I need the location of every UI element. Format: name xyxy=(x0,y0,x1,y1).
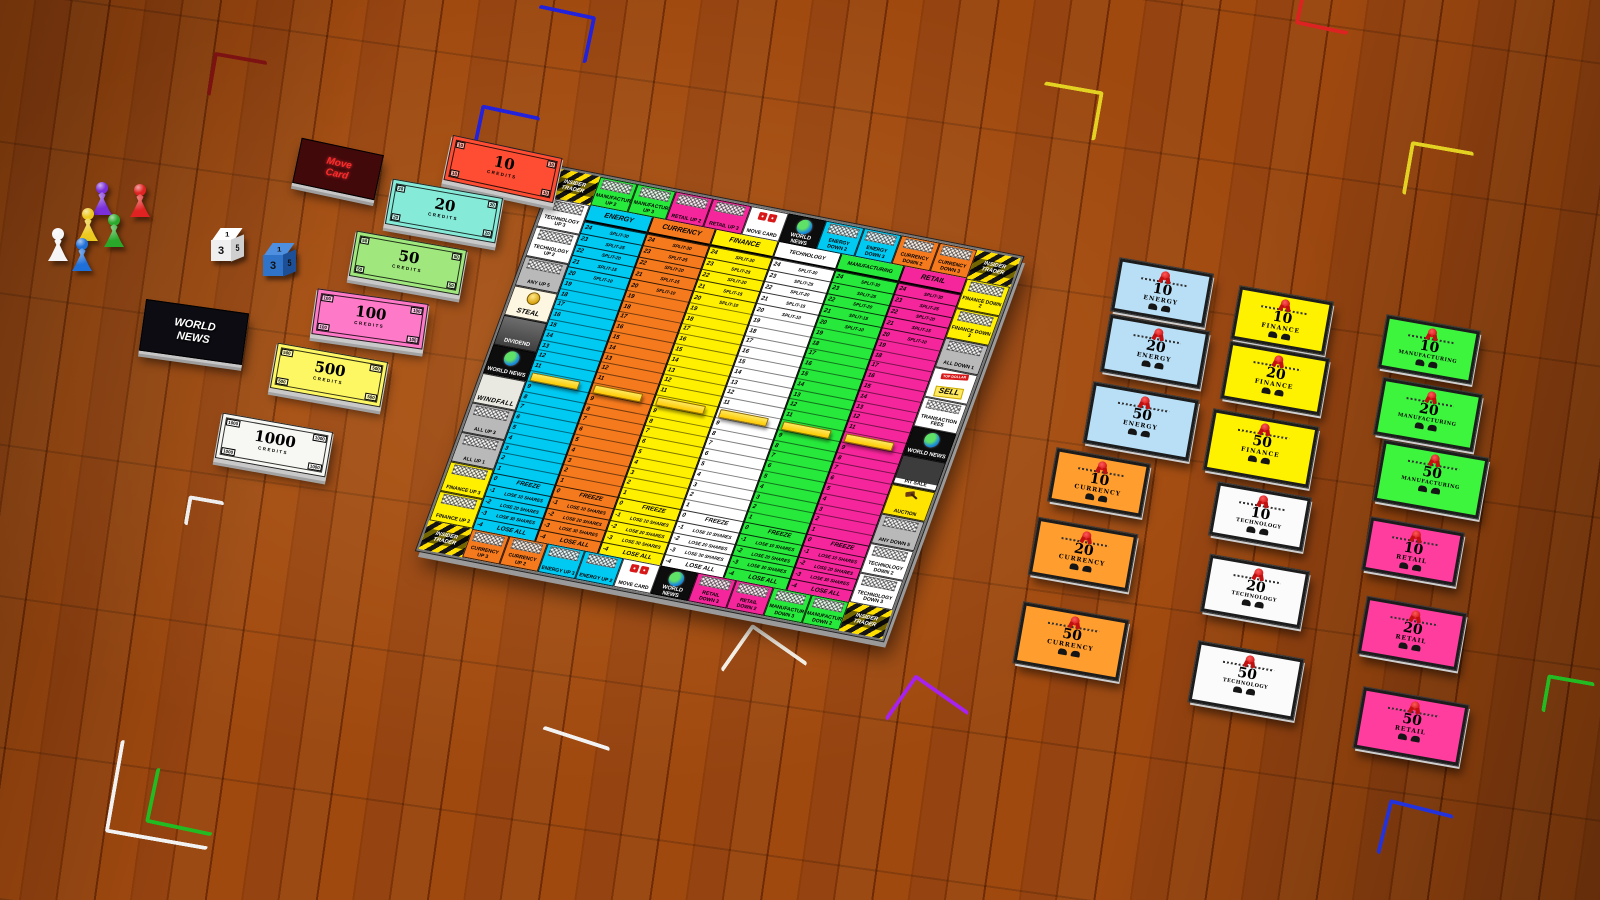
price-value: 11 xyxy=(657,387,672,395)
note-corner-value: 50 xyxy=(355,265,365,274)
price-value: 16 xyxy=(676,336,691,344)
price-value: 14 xyxy=(731,368,746,376)
bear-silhouette-icon xyxy=(1418,485,1428,492)
price-value: 18 xyxy=(558,291,573,299)
price-value: 15 xyxy=(547,321,562,329)
die-right-face: 5 xyxy=(231,234,244,261)
price-value: 6 xyxy=(513,414,528,422)
price-value: 18 xyxy=(809,340,824,348)
price-value: 1 xyxy=(809,526,824,534)
pawn-blue[interactable] xyxy=(72,238,92,271)
note-corner-value: 20 xyxy=(391,213,401,222)
bull-silhouette-icon xyxy=(1140,430,1150,437)
note-corner-value: 50 xyxy=(446,281,456,290)
share-certificate-manufacturing-20[interactable]: 20MANUFACTURING xyxy=(1374,378,1482,451)
red-ribbon-seal-icon xyxy=(1273,355,1283,365)
red-ribbon-seal-icon xyxy=(1160,271,1170,281)
money-note-100[interactable]: 100100100100100CREDITS xyxy=(311,288,428,349)
board-space-label: ENERGY UP 2 xyxy=(577,572,615,584)
share-certificate-currency-10[interactable]: 10CURRENCY xyxy=(1048,448,1150,517)
price-value: 8 xyxy=(709,430,724,438)
note-corner-value: 100 xyxy=(317,322,329,331)
price-value: 3 xyxy=(816,506,831,514)
world-news-deck-label: WORLD NEWS xyxy=(163,315,226,348)
red-ribbon-seal-icon xyxy=(1429,454,1439,464)
share-certificate-energy-20[interactable]: 20ENERGY xyxy=(1101,315,1209,388)
price-value: 6 xyxy=(764,463,779,471)
stock-chart-graphic xyxy=(586,553,619,568)
price-value: 5 xyxy=(635,449,650,457)
hand-zone-corner-marker xyxy=(1402,141,1474,205)
stock-chart-graphic xyxy=(812,597,845,612)
stock-chart-graphic xyxy=(601,179,634,194)
hand-zone-corner-marker xyxy=(720,624,808,709)
red-ribbon-seal-icon xyxy=(1244,655,1254,665)
price-value: 2 xyxy=(687,492,702,500)
price-value: 12 xyxy=(536,352,551,360)
price-value: 4 xyxy=(820,496,835,504)
note-corner-value: 1000 xyxy=(307,462,322,472)
note-corner-value: 500 xyxy=(276,377,289,386)
price-value: 6 xyxy=(827,475,842,483)
price-value: 19 xyxy=(562,280,577,288)
red-ribbon-seal-icon xyxy=(1280,299,1290,309)
bear-silhouette-icon xyxy=(1414,422,1424,429)
note-corner-value: 1000 xyxy=(221,447,236,457)
price-value: 13 xyxy=(791,391,806,399)
note-corner-value: 100 xyxy=(411,307,423,316)
price-value: 8 xyxy=(646,418,661,426)
bull-silhouette-icon xyxy=(1411,644,1421,651)
board-space-label: WORLD NEWS xyxy=(651,583,691,601)
share-certificate-manufacturing-50[interactable]: 50MANUFACTURING xyxy=(1374,440,1489,518)
coin-icon xyxy=(524,291,541,306)
stock-chart-graphic xyxy=(865,231,898,246)
price-value: 11 xyxy=(783,411,798,419)
bear-silhouette-icon xyxy=(1261,387,1271,394)
price-value: 8 xyxy=(521,393,536,401)
price-value: 1 xyxy=(557,477,572,485)
price-value: 1 xyxy=(683,502,698,510)
bear-silhouette-icon xyxy=(1058,648,1068,655)
pawn-green[interactable] xyxy=(104,214,124,247)
hand-zone-corner-marker xyxy=(884,674,969,756)
price-value: 14 xyxy=(794,381,809,389)
price-value: 16 xyxy=(865,372,880,380)
red-ribbon-seal-icon xyxy=(1258,495,1268,505)
board-space-label: RETAIL DOWN 3 xyxy=(690,589,730,606)
share-certificate-energy-50[interactable]: 50ENERGY xyxy=(1084,382,1199,460)
price-value: 17 xyxy=(806,350,821,358)
pawn-red[interactable] xyxy=(130,184,150,217)
price-value: 19 xyxy=(813,329,828,337)
hand-zone-corner-marker xyxy=(105,740,224,851)
price-value: 1 xyxy=(620,490,635,498)
hand-zone-corner-marker xyxy=(1036,81,1104,141)
die-icon xyxy=(757,212,768,221)
price-value: 3 xyxy=(502,445,517,453)
red-ribbon-seal-icon xyxy=(1259,423,1269,433)
board-corner-label: INSIDER TRADER xyxy=(842,609,890,631)
stock-chart-graphic xyxy=(736,583,769,598)
bear-silhouette-icon xyxy=(1241,599,1251,606)
price-value: 6 xyxy=(639,438,654,446)
share-certificate-retail-20[interactable]: 20RETAIL xyxy=(1358,597,1466,670)
red-ribbon-seal-icon xyxy=(1153,328,1163,338)
globe-icon xyxy=(922,431,942,448)
price-value: 6 xyxy=(702,451,717,459)
price-value: 19 xyxy=(625,293,640,301)
red-ribbon-seal-icon xyxy=(1069,616,1079,626)
price-value: 13 xyxy=(728,379,743,387)
dice-icon xyxy=(757,212,777,223)
bull-silhouette-icon xyxy=(1070,650,1080,657)
price-value: 17 xyxy=(868,362,883,370)
bear-silhouette-icon xyxy=(1233,686,1243,693)
price-value: 18 xyxy=(872,352,887,360)
die-icon xyxy=(767,214,778,223)
bear-silhouette-icon xyxy=(1399,562,1409,569)
price-value: 3 xyxy=(753,494,768,502)
board-corner-label: INSIDER TRADER xyxy=(970,257,1018,279)
stock-chart-graphic xyxy=(473,531,506,546)
price-value: 2 xyxy=(624,479,639,487)
board-space-label: MOVE CARD xyxy=(614,580,652,592)
red-ribbon-seal-icon xyxy=(1081,531,1091,541)
price-value: 18 xyxy=(684,315,699,323)
bear-silhouette-icon xyxy=(1248,455,1258,462)
bear-silhouette-icon xyxy=(1268,331,1278,338)
price-value: 11 xyxy=(846,424,861,432)
bull-silhouette-icon xyxy=(1082,565,1092,572)
bull-silhouette-icon xyxy=(1281,333,1291,340)
board-space-label: RETAIL DOWN 2 xyxy=(728,596,768,613)
stock-chart-graphic xyxy=(827,223,860,238)
price-value: 15 xyxy=(610,334,625,342)
price-value: 2 xyxy=(749,504,764,512)
price-value: 3 xyxy=(628,469,643,477)
stock-chart-graphic xyxy=(676,194,709,209)
bear-silhouette-icon xyxy=(1246,526,1256,533)
price-value: 18 xyxy=(621,303,636,311)
board-space-label: ENERGY UP 3 xyxy=(539,565,577,577)
price-value: 9 xyxy=(713,420,728,428)
price-value: 19 xyxy=(687,305,702,313)
note-corner-value: 20 xyxy=(482,229,492,238)
hand-zone-corner-marker xyxy=(540,726,611,761)
share-certificate-currency-50[interactable]: 50CURRENCY xyxy=(1014,602,1129,680)
note-corner-value: 10 xyxy=(455,141,465,150)
price-value: 9 xyxy=(587,395,602,403)
share-certificate-retail-50[interactable]: 50RETAIL xyxy=(1354,687,1469,765)
die-front-face: 3 xyxy=(263,255,283,276)
price-value: 1 xyxy=(494,465,509,473)
bull-silhouette-icon xyxy=(1412,564,1422,571)
bull-silhouette-icon xyxy=(1410,735,1420,742)
board-space-label: SELL xyxy=(933,385,965,399)
note-corner-value: 20 xyxy=(396,184,406,193)
hand-zone-corner-marker xyxy=(207,52,268,105)
note-corner-value: 50 xyxy=(451,253,461,262)
globe-icon xyxy=(501,349,521,366)
price-value: 1 xyxy=(746,514,761,522)
price-value: 7 xyxy=(768,452,783,460)
price-value: 15 xyxy=(798,370,813,378)
red-ribbon-seal-icon xyxy=(1097,461,1107,471)
board-space-label: MANUFACTURING DOWN 2 xyxy=(803,611,843,628)
hand-zone-corner-marker xyxy=(1376,799,1454,869)
price-value: 17 xyxy=(680,325,695,333)
share-certificate-technology-10[interactable]: 10TECHNOLOGY xyxy=(1209,482,1311,551)
price-value: 17 xyxy=(743,338,758,346)
bull-silhouette-icon xyxy=(1274,389,1284,396)
pawn-white[interactable] xyxy=(48,228,68,261)
price-value: 15 xyxy=(861,383,876,391)
price-value: 16 xyxy=(550,311,565,319)
bull-silhouette-icon xyxy=(1259,528,1269,535)
price-tag-icon: TOP DOLLAR xyxy=(940,373,968,380)
red-ribbon-seal-icon xyxy=(1409,701,1419,711)
price-value: 7 xyxy=(517,404,532,412)
stock-chart-graphic xyxy=(940,245,973,260)
price-value: 5 xyxy=(509,424,524,432)
share-certificate-technology-20[interactable]: 20TECHNOLOGY xyxy=(1201,555,1309,628)
red-ribbon-seal-icon xyxy=(1253,568,1263,578)
red-ribbon-seal-icon xyxy=(1139,396,1149,406)
bear-silhouette-icon xyxy=(1128,428,1138,435)
white-die[interactable]: 135 xyxy=(210,228,246,262)
move-card-deck[interactable]: Move Card xyxy=(292,138,384,200)
bull-silhouette-icon xyxy=(1246,688,1256,695)
price-value: 13 xyxy=(602,354,617,362)
red-ribbon-seal-icon xyxy=(1411,530,1421,540)
die-right-face: 5 xyxy=(283,249,296,276)
price-value: 14 xyxy=(857,393,872,401)
price-value: 16 xyxy=(739,348,754,356)
price-value: 17 xyxy=(554,301,569,309)
money-note-50[interactable]: 5050505050CREDITS xyxy=(349,231,467,296)
price-value: 8 xyxy=(835,454,850,462)
money-note-500[interactable]: 500500500500500CREDITS xyxy=(270,343,388,408)
bear-silhouette-icon xyxy=(1141,360,1151,367)
bull-silhouette-icon xyxy=(1431,487,1441,494)
board-space-label: CURRENCY UP 3 xyxy=(464,545,504,562)
red-ribbon-seal-icon xyxy=(1426,391,1436,401)
price-value: 7 xyxy=(580,416,595,424)
bull-silhouette-icon xyxy=(1154,362,1164,369)
bull-silhouette-icon xyxy=(1098,495,1108,502)
die-face-value: 5 xyxy=(235,243,239,253)
price-value: 7 xyxy=(831,465,846,473)
share-certificate-manufacturing-10[interactable]: 10MANUFACTURING xyxy=(1378,315,1480,384)
pawn-body xyxy=(48,238,68,261)
price-value: 13 xyxy=(665,366,680,374)
bull-silhouette-icon xyxy=(1427,424,1437,431)
red-ribbon-seal-icon xyxy=(1427,328,1437,338)
price-value: 13 xyxy=(539,342,554,350)
board-space-label: CURRENCY UP 2 xyxy=(501,552,541,569)
price-value: 7 xyxy=(642,428,657,436)
price-value: 11 xyxy=(595,375,610,383)
pawn-body xyxy=(130,194,150,217)
price-value: 4 xyxy=(631,459,646,467)
price-value: 11 xyxy=(532,363,547,371)
stock-chart-graphic xyxy=(510,539,543,554)
bull-silhouette-icon xyxy=(1428,361,1438,368)
price-value: 12 xyxy=(661,377,676,385)
die-icon xyxy=(639,566,650,575)
price-value: 5 xyxy=(698,461,713,469)
price-value: 15 xyxy=(672,346,687,354)
price-value: 19 xyxy=(876,341,891,349)
price-value: 12 xyxy=(850,413,865,421)
note-corner-value: 100 xyxy=(407,335,419,344)
stock-market-game-board: INSIDER TRADERINSIDER TRADERINSIDER TRAD… xyxy=(416,166,1023,641)
stock-chart-graphic xyxy=(699,575,732,590)
price-value: 7 xyxy=(705,440,720,448)
stock-chart-graphic xyxy=(714,201,747,216)
price-value: 14 xyxy=(606,344,621,352)
price-value: 17 xyxy=(617,313,632,321)
red-ribbon-seal-icon xyxy=(1410,610,1420,620)
price-value: 2 xyxy=(561,467,576,475)
price-value: 4 xyxy=(694,471,709,479)
pawn-yellow[interactable] xyxy=(78,208,98,241)
world-news-deck[interactable]: WORLD NEWS xyxy=(139,299,249,365)
board-space-label: MANUFACTURING DOWN 3 xyxy=(765,604,805,621)
board-corner-label: INSIDER TRADER xyxy=(421,528,469,550)
price-value: 11 xyxy=(720,399,735,407)
price-value: 13 xyxy=(853,403,868,411)
note-corner-value: 500 xyxy=(365,392,378,401)
price-value: 9 xyxy=(650,408,665,416)
bull-silhouette-icon xyxy=(1260,457,1270,464)
note-corner-value: 50 xyxy=(360,236,370,245)
stock-chart-graphic xyxy=(548,546,581,561)
price-value: 4 xyxy=(757,483,772,491)
price-value: 14 xyxy=(543,332,558,340)
stock-chart-graphic xyxy=(638,187,671,202)
bear-silhouette-icon xyxy=(1085,493,1095,500)
dice-icon xyxy=(629,564,649,575)
gavel-icon xyxy=(901,490,920,503)
hand-zone-corner-marker xyxy=(184,495,225,531)
note-corner-value: 10 xyxy=(449,169,459,178)
price-value: 2 xyxy=(812,516,827,524)
price-value: 2 xyxy=(498,455,513,463)
bear-silhouette-icon xyxy=(1398,642,1408,649)
tabletop-game-scene: INSIDER TRADERINSIDER TRADERINSIDER TRAD… xyxy=(0,0,1600,900)
bear-silhouette-icon xyxy=(1398,733,1408,740)
price-value: 3 xyxy=(690,481,705,489)
price-value: 8 xyxy=(583,406,598,414)
hand-zone-corner-marker xyxy=(1295,0,1356,35)
pawn-body xyxy=(72,248,92,271)
price-value: 4 xyxy=(568,447,583,455)
price-value: 18 xyxy=(746,327,761,335)
hand-zone-corner-marker xyxy=(1541,674,1595,720)
price-value: 5 xyxy=(761,473,776,481)
bear-silhouette-icon xyxy=(1415,359,1425,366)
pawn-body xyxy=(104,224,124,247)
bear-silhouette-icon xyxy=(1148,303,1158,310)
price-value: 9 xyxy=(524,383,539,391)
note-corner-value: 100 xyxy=(321,294,333,303)
money-note-1000[interactable]: 10001000100010001000CREDITS xyxy=(215,413,333,478)
price-value: 8 xyxy=(772,442,787,450)
stock-chart-graphic xyxy=(902,238,935,253)
die-face-value: 5 xyxy=(287,258,291,268)
price-value: 12 xyxy=(724,389,739,397)
note-corner-value: 20 xyxy=(487,201,497,210)
price-value: 12 xyxy=(787,401,802,409)
price-value: 9 xyxy=(776,432,791,440)
share-certificate-technology-50[interactable]: 50TECHNOLOGY xyxy=(1189,641,1304,719)
price-value: 6 xyxy=(576,426,591,434)
stock-chart-graphic xyxy=(774,590,807,605)
die-front-face: 3 xyxy=(211,240,231,261)
price-value: 4 xyxy=(506,434,521,442)
die-face-value: 1 xyxy=(277,246,281,253)
price-value: 14 xyxy=(669,356,684,364)
hand-zone-corner-marker xyxy=(530,4,597,63)
share-certificate-retail-10[interactable]: 10RETAIL xyxy=(1362,517,1464,586)
note-corner-value: 10 xyxy=(540,188,550,197)
price-value: 16 xyxy=(802,360,817,368)
price-value: 15 xyxy=(735,358,750,366)
price-value: 3 xyxy=(565,457,580,465)
share-certificate-finance-50[interactable]: 50FINANCE xyxy=(1204,409,1319,487)
price-value: 19 xyxy=(750,317,765,325)
bull-silhouette-icon xyxy=(1161,305,1171,312)
share-certificate-currency-20[interactable]: 20CURRENCY xyxy=(1029,518,1137,591)
die-face-value: 1 xyxy=(225,231,229,238)
note-corner-value: 10 xyxy=(546,160,556,169)
bear-silhouette-icon xyxy=(1069,563,1079,570)
bull-silhouette-icon xyxy=(1254,601,1264,608)
blue-die[interactable]: 135 xyxy=(262,243,298,277)
share-certificate-energy-10[interactable]: 10ENERGY xyxy=(1111,258,1213,327)
move-card-deck-label: Move Card xyxy=(311,153,365,186)
price-value: 5 xyxy=(823,485,838,493)
price-value: 5 xyxy=(572,436,587,444)
die-icon xyxy=(629,564,640,573)
price-value: 9 xyxy=(838,444,853,452)
price-value: 16 xyxy=(613,323,628,331)
price-value: 12 xyxy=(598,364,613,372)
